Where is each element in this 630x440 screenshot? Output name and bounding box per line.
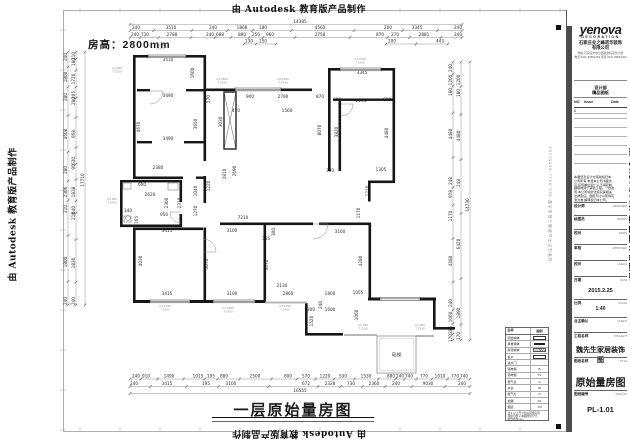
- dim-label: 570: [302, 374, 310, 379]
- dim-label: 1560: [282, 108, 293, 113]
- dim-label: 180: [456, 89, 461, 97]
- dim-label: 1800: [325, 291, 336, 296]
- dim-label: 1868: [237, 25, 248, 30]
- wall: [305, 303, 308, 334]
- dim-label: 365: [262, 236, 270, 241]
- legend-header-name: 名称: [506, 328, 530, 334]
- dim-label: 4280: [448, 255, 453, 266]
- wall: [120, 225, 182, 228]
- door-arc: [150, 91, 163, 104]
- watermark-bottom: 由 Autodesk 教育版产品制作: [232, 428, 366, 440]
- titleblock-row-drawn: 绘图员 DRAWN: [574, 215, 627, 229]
- dim-label: 1055: [353, 290, 364, 295]
- dim-label: 3510: [166, 25, 177, 30]
- door-arc: [341, 104, 353, 116]
- field-label-en: APPROVED: [612, 247, 627, 250]
- dim-label: 950: [160, 212, 168, 217]
- field-label: 绘图员: [574, 217, 585, 222]
- dim-label: 2500: [250, 374, 261, 379]
- dim-label: 1305: [376, 167, 387, 172]
- dim-label: 195: [202, 381, 210, 386]
- fold-mark-top: [556, 25, 561, 30]
- field-label-en: DESIGNER: [613, 205, 627, 208]
- dim-label: 2130: [277, 283, 288, 288]
- dim-label: 1040: [193, 185, 198, 196]
- titleblock-row-scale: 比例 SCALE 1:40: [574, 299, 627, 317]
- window-tag: C1:1530T:1420: [159, 304, 171, 312]
- dim-label: 270: [391, 32, 399, 37]
- window-tag: C1:1560T:1420: [216, 77, 228, 85]
- dim-label: 2690: [232, 165, 237, 176]
- dim-label: 978: [448, 190, 453, 198]
- fold-mark-bottom: [556, 424, 561, 429]
- issue-row: A: [574, 109, 627, 114]
- dim-label: 1010: [435, 374, 446, 379]
- wall: [368, 181, 395, 184]
- dim-label: 2380: [153, 165, 164, 170]
- dim-label: 870: [316, 94, 324, 99]
- dim-label: 130: [245, 39, 253, 44]
- dim-label: 770: [420, 374, 428, 379]
- dim-label: 1720: [71, 73, 76, 84]
- dim-label: 3490: [163, 136, 174, 141]
- dim-label: 4480: [384, 127, 389, 138]
- dim-label: 600: [138, 182, 146, 187]
- dim-label: 240: [63, 53, 68, 61]
- dim-label: 1200: [456, 74, 461, 85]
- wall: [204, 176, 207, 203]
- dim-label: 1800: [63, 256, 68, 267]
- dim-label: 300: [307, 307, 315, 312]
- dim-label: 3100: [227, 291, 238, 296]
- wall: [333, 99, 393, 101]
- dim-label: 2810: [222, 168, 227, 179]
- field-label-en: DATE: [620, 279, 627, 282]
- field-label: 日期: [574, 278, 581, 283]
- dim-label: 1015: [193, 374, 204, 379]
- dim-label: 4608: [63, 128, 68, 139]
- window-tag: C2:2330T:1420: [277, 77, 289, 85]
- dim-label: 880: [238, 32, 246, 37]
- window-sill: [344, 334, 377, 336]
- dim-label: 340: [124, 208, 132, 213]
- dim-label: 770: [451, 374, 459, 379]
- plan-title-underline: [212, 417, 374, 418]
- legend-table: 名称 图例原始墙体承重墙体新建墙体窗户进户门强电箱B弱电箱TV燃气表G水表W暖气…: [505, 327, 549, 421]
- dim-label: 16555: [293, 388, 307, 393]
- titleblock-row-check: 校对 CHECK: [574, 260, 627, 276]
- dim-label: 2360: [369, 381, 380, 386]
- dim-label: 6420: [456, 238, 461, 249]
- window-sill: [416, 335, 434, 337]
- window-tag: C1:2306T:1420: [354, 57, 366, 65]
- dim-label: 960: [266, 32, 274, 37]
- window-tag: C2:900T:2150: [107, 197, 117, 205]
- dim-label: 240: [454, 25, 462, 30]
- dim-label: 870: [376, 32, 384, 37]
- dim-label: 2758: [315, 32, 326, 37]
- fixture-drain: [126, 216, 131, 221]
- company-side-address: 石家庄市中山西路三段金大厦 TEL:0311-89551263: [549, 74, 554, 334]
- dim-label: 1890: [456, 307, 461, 318]
- dim-label: 180: [259, 25, 267, 30]
- field-value: PL-1.01: [574, 405, 627, 414]
- legend-header-symbol: 图例: [530, 328, 548, 334]
- dim-label: 240: [132, 374, 140, 379]
- wall: [433, 300, 436, 329]
- dim-label: 248: [448, 177, 453, 185]
- field-label: 校对: [574, 262, 581, 267]
- dim-label: 2790: [278, 94, 289, 99]
- dim-label: 1270: [193, 205, 198, 216]
- dim-label: 1060: [354, 309, 359, 320]
- dim-label: 4560: [315, 25, 326, 30]
- dim-label: 530: [339, 374, 347, 379]
- dim-label: 240: [454, 32, 462, 37]
- field-label: 图纸名称: [574, 359, 588, 364]
- field-label: 图纸编号: [574, 392, 588, 397]
- dim-label: 9030: [423, 381, 434, 386]
- dim-label: 443: [436, 39, 444, 44]
- issue-row: [574, 145, 627, 146]
- dim-label: 4480: [448, 128, 453, 139]
- dim-label: 3345: [412, 25, 423, 30]
- dim-label: 240: [458, 381, 466, 386]
- dim-label: 730: [347, 381, 355, 386]
- wall: [328, 68, 331, 171]
- wall: [196, 177, 206, 179]
- wall: [133, 228, 136, 303]
- dim-label: 740: [460, 374, 468, 379]
- room-height-label: 房高：2800mm: [88, 37, 171, 52]
- dim-label: 1490: [164, 374, 175, 379]
- dim-label: 240: [318, 301, 323, 309]
- wall: [184, 141, 206, 143]
- dim-label: 1838: [71, 186, 76, 197]
- plan-title-underline2: [212, 421, 374, 422]
- dim-label: 240: [209, 25, 217, 30]
- window-tag: C2:1490T:1420: [279, 304, 291, 312]
- dim-label: 240: [206, 32, 214, 37]
- dim-label: 1220: [320, 374, 331, 379]
- wall: [133, 55, 136, 179]
- watermark-top: 由 Autodesk 教育版产品制作: [232, 2, 366, 15]
- field-value: 2015.2.25: [574, 288, 627, 294]
- issue-row: [574, 127, 627, 128]
- field-label: 业主确认: [574, 319, 588, 324]
- dim-label: 672: [302, 381, 310, 386]
- department-box: 设计部 精品图纸: [574, 80, 627, 98]
- issue-row: [574, 154, 627, 155]
- wall: [186, 89, 206, 91]
- dim-label: 1170: [448, 210, 453, 221]
- dim-label: 910: [142, 374, 150, 379]
- dim-label: 1600: [325, 307, 336, 312]
- dim-label: 200: [384, 25, 392, 30]
- wall: [220, 223, 313, 226]
- field-label: 工程名称: [574, 334, 588, 339]
- wall: [305, 333, 343, 336]
- dim-label: 4480: [456, 130, 461, 141]
- dim-label: 2306: [63, 186, 68, 197]
- issue-row: [574, 118, 627, 119]
- dim-label: 200: [388, 39, 396, 44]
- field-label-en: TITLE: [620, 360, 627, 363]
- field-value: 原始量房图: [574, 374, 627, 389]
- dim-label: 1520: [309, 315, 314, 326]
- window-tag: C2:920T:2150: [415, 323, 425, 331]
- dim-label: 1800: [63, 71, 68, 82]
- wall: [369, 223, 372, 300]
- wall: [133, 177, 183, 180]
- watermark-left: 由 Autodesk 教育版产品制作: [6, 95, 19, 335]
- field-label-en: PROJECT: [614, 335, 627, 338]
- dim-label: 880: [220, 374, 228, 379]
- issue-row: [574, 163, 627, 164]
- dim-label: 95: [71, 164, 76, 170]
- field-value: 1:40: [574, 306, 627, 312]
- dim-label: 1530: [361, 374, 372, 379]
- wall: [133, 228, 203, 231]
- titleblock-row-designer: 设计师 DESIGNER: [574, 202, 627, 215]
- dim-label: 240: [71, 297, 76, 305]
- door-arc: [313, 224, 328, 239]
- dim-label: 740: [405, 374, 413, 379]
- titleblock-row-title: 图纸名称 TITLE 原始量房图: [574, 357, 627, 390]
- title-block: yenova DECORATION 石家庄业之峰诺华装饰 有限公司 地址:石家庄…: [566, 10, 629, 432]
- wall: [368, 181, 371, 202]
- dim-label: 8070: [317, 124, 322, 135]
- titleblock-row-draw: 校对 DRAW: [574, 229, 627, 244]
- window-tag: C2:920T:2150: [358, 323, 368, 331]
- field-label-en: CHECK: [618, 263, 627, 266]
- dim-label: 800: [284, 374, 292, 379]
- dim-label: 958: [71, 130, 76, 138]
- dim-label: 170: [456, 332, 461, 340]
- dim-label: 4030: [138, 255, 143, 266]
- dim-label: 4670: [136, 121, 141, 132]
- wall: [180, 180, 183, 202]
- titleblock-row-approved: 审核 APPROVED: [574, 244, 627, 260]
- company-address-line2: 电话:0311-89551263 传真:0311-89551262: [574, 56, 627, 59]
- dim-label: 3415: [162, 291, 173, 296]
- issue-table-header: NO. Issue Date: [574, 100, 627, 108]
- wall: [264, 223, 267, 303]
- dim-label: 14730: [465, 198, 470, 212]
- dim-label: 3160: [335, 229, 346, 234]
- dim-label: 2300: [164, 197, 169, 208]
- dim-label: 240: [392, 381, 400, 386]
- dim-label: 2860: [283, 291, 294, 296]
- window-tag: C1:1860T:1420: [222, 306, 234, 314]
- dim-label: 4280: [358, 255, 363, 266]
- dim-label: 3490: [163, 93, 174, 98]
- dim-label: 630: [71, 157, 76, 165]
- disclaimer-text: 本图纸及设计方案版权归本公司所有,未经本公司书面许可,任何单位和个人不得复制翻版…: [574, 176, 627, 203]
- dim-label: 150: [259, 39, 267, 44]
- dim-label: 180: [448, 88, 453, 96]
- dim-label: 1220: [206, 180, 211, 191]
- dim-label: 3100: [227, 228, 238, 233]
- field-label: 设计师: [574, 204, 585, 209]
- dim-label: 385: [448, 326, 453, 334]
- wall: [339, 101, 342, 171]
- dim-label: 180: [71, 58, 76, 66]
- wall: [433, 327, 455, 330]
- department-line2: 精品图纸: [574, 90, 627, 95]
- dim-label: 240: [448, 64, 453, 72]
- dim-label: 3820: [334, 126, 339, 137]
- fixture: [168, 183, 178, 190]
- dim-label: 2620: [145, 192, 156, 197]
- fixture: [123, 183, 131, 189]
- wall: [137, 141, 152, 143]
- dim-label: 1170: [356, 207, 361, 218]
- field-label-en: SCALE: [618, 302, 627, 305]
- issue-row: [574, 136, 627, 137]
- titleblock-row-dwgno: 图纸编号 DWG.NO PL-1.01: [574, 390, 627, 420]
- dim-label: 14385: [293, 19, 307, 24]
- dim-label: 210: [63, 205, 68, 213]
- dim-label: 2881: [419, 32, 430, 37]
- wall: [137, 89, 150, 91]
- dim-label: 280: [71, 97, 76, 105]
- dim-label: 240: [63, 297, 68, 305]
- wall: [180, 214, 183, 227]
- dim-label: 250: [252, 32, 260, 37]
- field-label: 审核: [574, 246, 581, 251]
- field-label-en: DRAWN: [617, 218, 627, 221]
- field-label-en: CLIENT: [617, 320, 627, 323]
- dim-label: 3100: [226, 381, 237, 386]
- dim-label: 3415: [162, 381, 173, 386]
- field-label-en: DRAW: [619, 232, 627, 235]
- dim-label: 240: [130, 381, 138, 386]
- dim-label: 240: [396, 374, 404, 379]
- wall: [393, 68, 396, 183]
- dim-label: 1830: [71, 257, 76, 268]
- dim-label: 7210: [238, 215, 249, 220]
- wall: [120, 180, 182, 182]
- dim-label: 688: [216, 32, 224, 37]
- dim-label: 300: [271, 228, 276, 236]
- cad-sheet: 1438524035102401868180456020033452402407…: [0, 0, 630, 440]
- dim-label: 电梯: [391, 352, 401, 359]
- dim-label: 900: [246, 94, 254, 99]
- wall: [204, 55, 207, 161]
- dim-label: 2328: [325, 381, 336, 386]
- dim-label: 240: [448, 299, 453, 307]
- dim-label: 3650: [193, 118, 198, 129]
- titleblock-row-client: 业主确认 CLIENT: [574, 317, 627, 332]
- dim-label: 170: [448, 334, 453, 342]
- titleblock-row-project: 工程名称 PROJECT 魏先生家居装饰图: [574, 332, 627, 357]
- dim-label: 3030: [218, 116, 223, 127]
- dim-label: 880: [387, 374, 395, 379]
- dim-label: 1060: [448, 311, 453, 322]
- title-block-bar: [567, 26, 572, 432]
- dim-label: 17710: [80, 173, 85, 187]
- field-label: 校对: [574, 231, 581, 236]
- legend-notes: 注:1.以上尺寸均以现场实际测量为准;2.本图所注尺寸单位均为mm。: [506, 411, 548, 423]
- dim-label: 280: [63, 166, 68, 174]
- dim-label: 210: [71, 212, 76, 220]
- dim-label: 1200: [448, 74, 453, 85]
- dim-label: 165: [134, 216, 139, 224]
- dim-label: 195: [207, 374, 215, 379]
- window-tag: C2:900T:2150: [112, 66, 122, 74]
- field-label-en: DWG.NO: [616, 393, 627, 396]
- dim-label: 240: [132, 25, 140, 30]
- wall: [120, 180, 123, 227]
- dim-label: 248: [456, 179, 461, 187]
- door-arc: [170, 212, 181, 223]
- dim-label: 570: [206, 95, 211, 103]
- dim-label: 280: [63, 93, 68, 101]
- dim-label: 1600: [190, 67, 195, 78]
- titleblock-row-date: 日期 DATE 2015.2.25: [574, 276, 627, 299]
- wall: [204, 228, 207, 303]
- company-logo-sub: DECORATION: [574, 35, 627, 39]
